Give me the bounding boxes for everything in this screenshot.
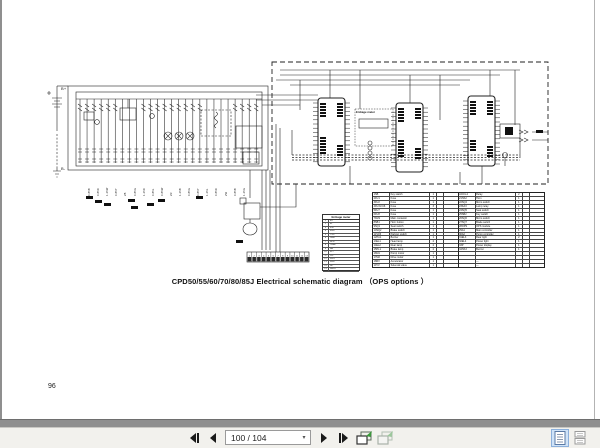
wire-label: 0.85R — [215, 188, 218, 196]
first-page-icon — [189, 433, 200, 443]
wire-label: 0.85B — [234, 188, 237, 196]
previous-view-icon — [356, 431, 373, 445]
wire-label: 0.85Y — [115, 188, 118, 196]
wire-label: 1.25R — [143, 188, 146, 196]
viewer-background — [0, 419, 600, 427]
wire-label: 1.25W — [106, 188, 109, 197]
page-number-combobox: ▾ — [225, 430, 311, 445]
continuous-view-icon — [574, 431, 586, 445]
wire-label: 0.85B — [88, 188, 91, 196]
wire-label: 1.25L — [206, 189, 209, 197]
schematic-caption: CPD50/55/60/70/80/85J Electrical schemat… — [60, 276, 540, 287]
wire-label: 1.25B — [179, 188, 182, 196]
next-view-button[interactable] — [376, 431, 394, 444]
wire-label: 0.85R — [97, 188, 100, 196]
engage-meter-label: EnGage meter — [356, 110, 375, 114]
wire-label: 2R — [170, 192, 173, 196]
wire-label: 0.85G — [134, 188, 137, 196]
parts-table-left-half: 1SBKey switch12FU1Fuse13FU2Fuse14FU3-FU6… — [373, 193, 459, 267]
engage-meter-row: 15SHLD — [323, 268, 359, 271]
page-number: 96 — [48, 383, 56, 390]
prev-page-button[interactable] — [206, 431, 220, 444]
app-window: { "page": { "number_label": "96", "capti… — [0, 0, 600, 448]
table-row: — — [459, 264, 545, 267]
prev-page-icon — [208, 433, 218, 443]
wire-label: 2W — [225, 192, 228, 196]
page-input[interactable] — [226, 433, 298, 443]
next-page-button[interactable] — [317, 431, 331, 444]
table-row: 19YVSolenoid valve1 — [373, 264, 458, 267]
wire-label: 0.85G — [188, 188, 191, 196]
battery-positive-label: B+ — [61, 86, 66, 91]
last-page-button[interactable] — [336, 431, 350, 444]
wire-label: 0.85W — [161, 188, 164, 197]
next-page-icon — [319, 433, 329, 443]
parts-table: 1SBKey switch12FU1Fuse13FU2Fuse14FU3-FU6… — [372, 192, 545, 268]
next-view-icon — [377, 431, 394, 445]
wire-label: 0.85L — [152, 189, 155, 197]
parts-table-right-half: ACD1-2Relay221HA2Horn122SQ4Micro switch1… — [459, 193, 545, 267]
wire-label: 2B — [124, 192, 127, 196]
single-page-view-icon — [554, 431, 566, 445]
battery-negative-label: B- — [61, 166, 65, 171]
previous-view-button[interactable] — [355, 431, 373, 444]
first-page-button[interactable] — [187, 431, 201, 444]
last-page-icon — [338, 433, 349, 443]
continuous-view-button[interactable] — [571, 429, 589, 447]
wire-label: 0.85Y — [197, 188, 200, 196]
page-dropdown-caret-icon[interactable]: ▾ — [298, 431, 310, 444]
page-right-border — [594, 0, 595, 419]
engage-meter-table: EnGage meter 1B+2B-3KSI4RXD5TXD6GND7SPD8… — [322, 214, 360, 271]
wire-label: 1.25G — [243, 188, 246, 196]
single-page-view-button[interactable] — [551, 429, 569, 447]
